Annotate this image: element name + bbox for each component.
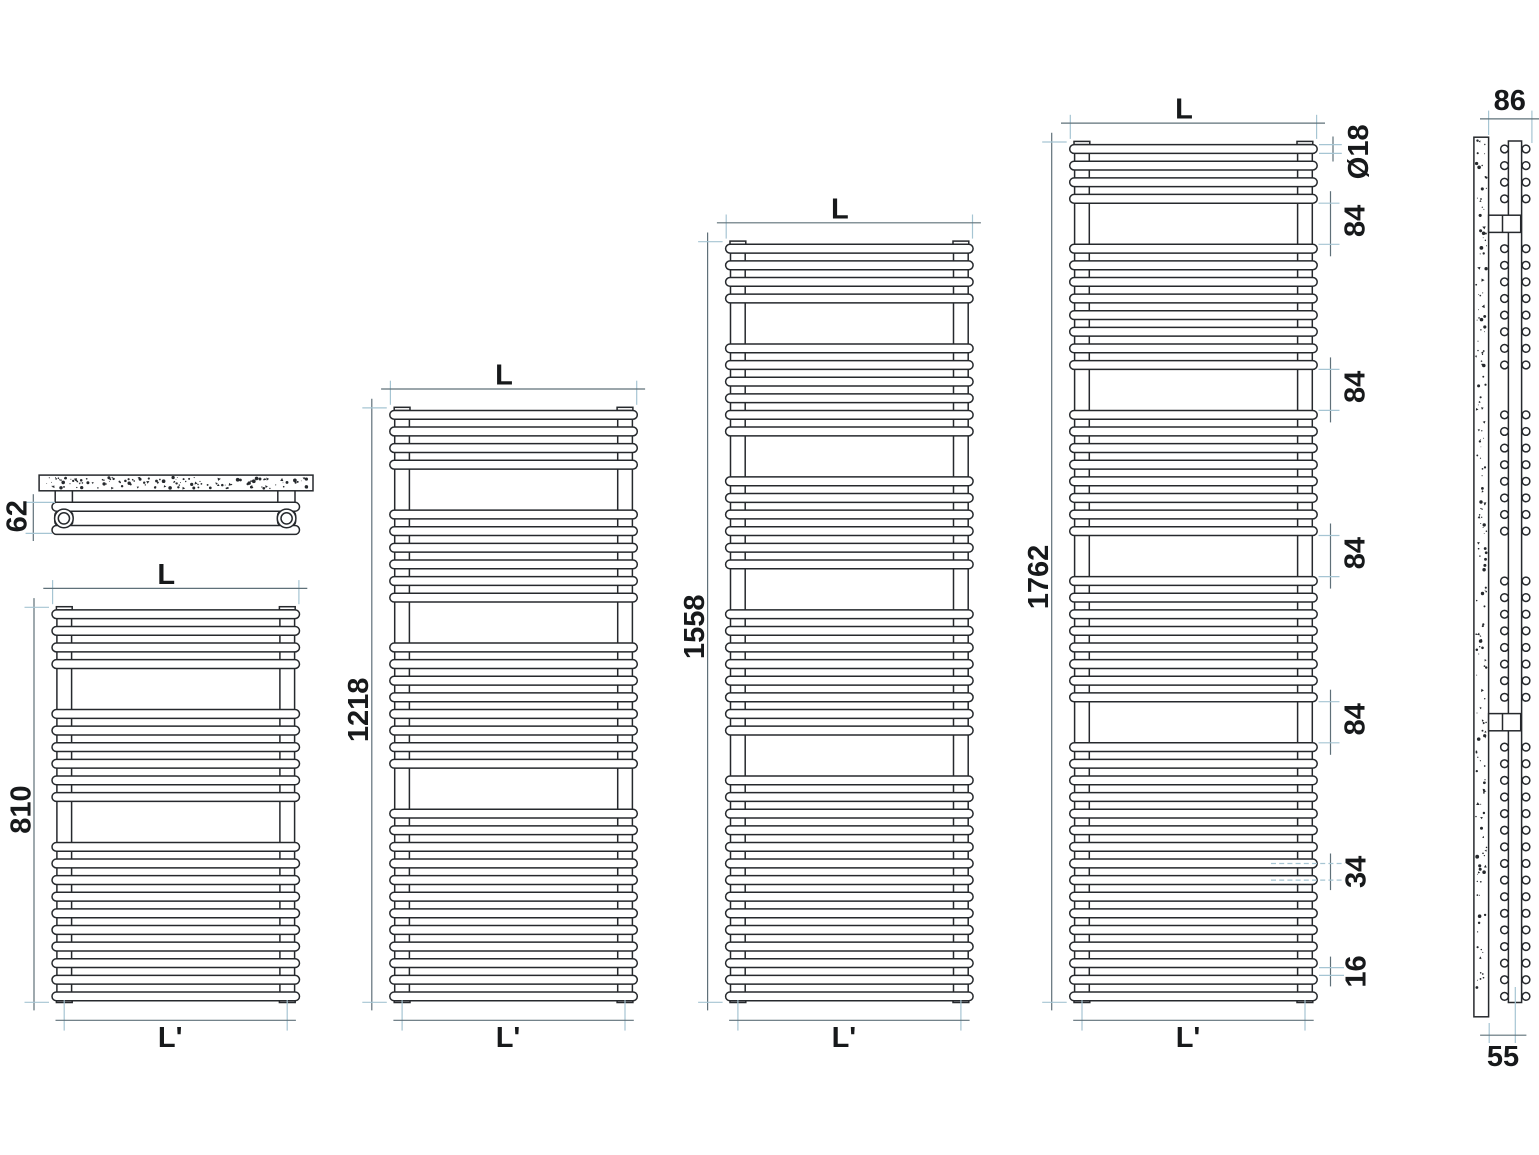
svg-text:1218: 1218: [343, 678, 375, 743]
svg-text:84: 84: [1340, 703, 1372, 735]
svg-text:L': L': [496, 1022, 521, 1054]
svg-text:34: 34: [1341, 856, 1373, 888]
svg-text:L': L': [1176, 1022, 1201, 1054]
svg-text:16: 16: [1341, 955, 1373, 987]
svg-text:Ø18: Ø18: [1343, 124, 1375, 179]
svg-text:1558: 1558: [679, 595, 711, 660]
svg-text:L': L': [158, 1022, 183, 1054]
svg-text:L: L: [831, 193, 849, 225]
svg-text:55: 55: [1487, 1041, 1519, 1073]
svg-text:86: 86: [1494, 85, 1526, 117]
svg-text:810: 810: [5, 785, 37, 833]
svg-text:L: L: [157, 559, 175, 591]
svg-text:L: L: [1175, 94, 1193, 126]
svg-text:84: 84: [1340, 205, 1372, 237]
svg-text:1762: 1762: [1023, 545, 1055, 610]
svg-text:84: 84: [1340, 537, 1372, 569]
svg-text:L': L': [832, 1022, 857, 1054]
svg-text:L: L: [495, 360, 513, 392]
svg-text:84: 84: [1340, 371, 1372, 403]
svg-text:62: 62: [2, 500, 34, 532]
